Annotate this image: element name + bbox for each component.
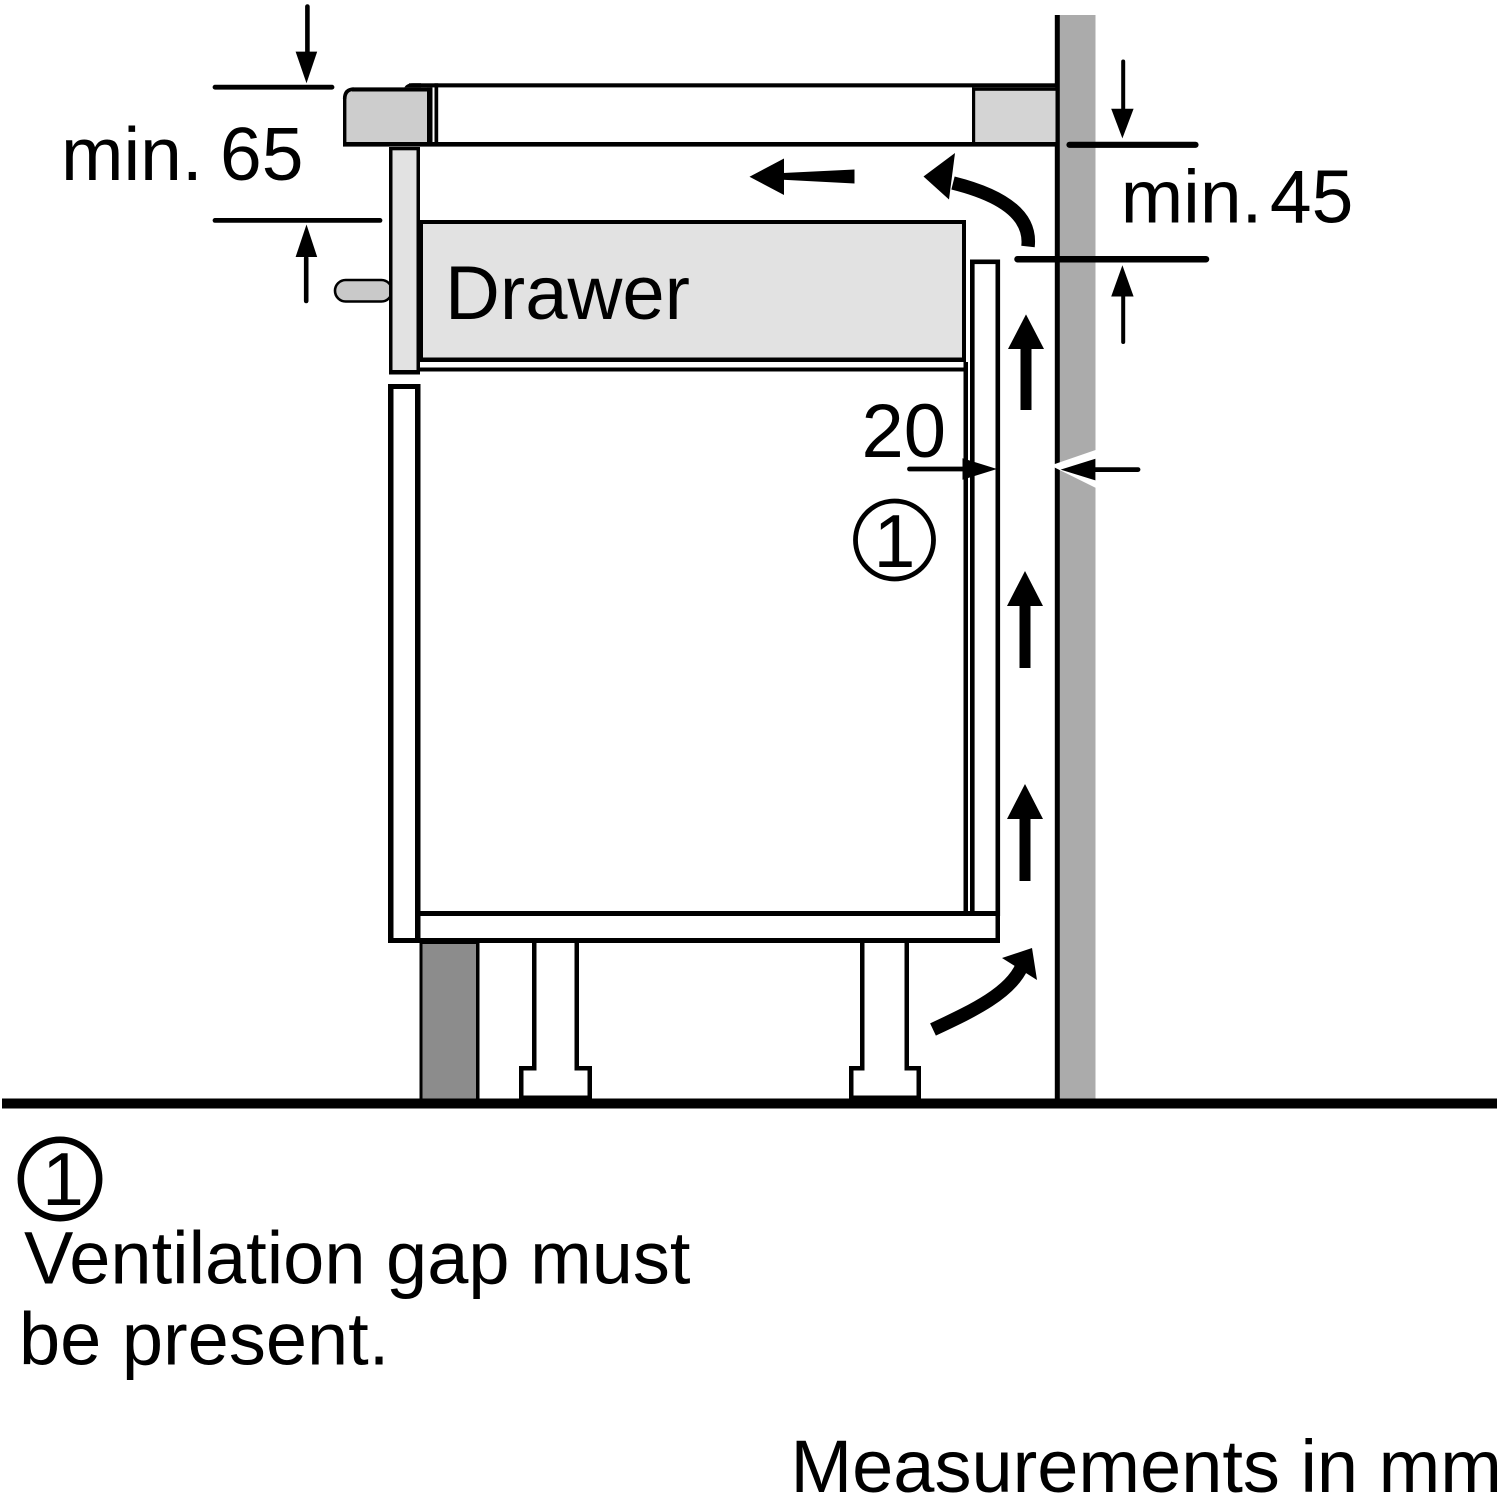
svg-text:Ventilation gap must: Ventilation gap must bbox=[24, 1217, 691, 1300]
svg-text:min.: min. bbox=[1121, 154, 1263, 238]
svg-text:be present.: be present. bbox=[19, 1298, 389, 1381]
svg-text:20: 20 bbox=[862, 389, 947, 474]
svg-text:65: 65 bbox=[220, 112, 303, 196]
svg-text:1: 1 bbox=[42, 1137, 84, 1221]
svg-text:1: 1 bbox=[874, 499, 916, 583]
svg-text:45: 45 bbox=[1270, 154, 1353, 238]
svg-text:Measurements in mm: Measurements in mm bbox=[791, 1425, 1500, 1500]
svg-text:Drawer: Drawer bbox=[445, 251, 690, 336]
svg-text:min.: min. bbox=[61, 112, 203, 196]
